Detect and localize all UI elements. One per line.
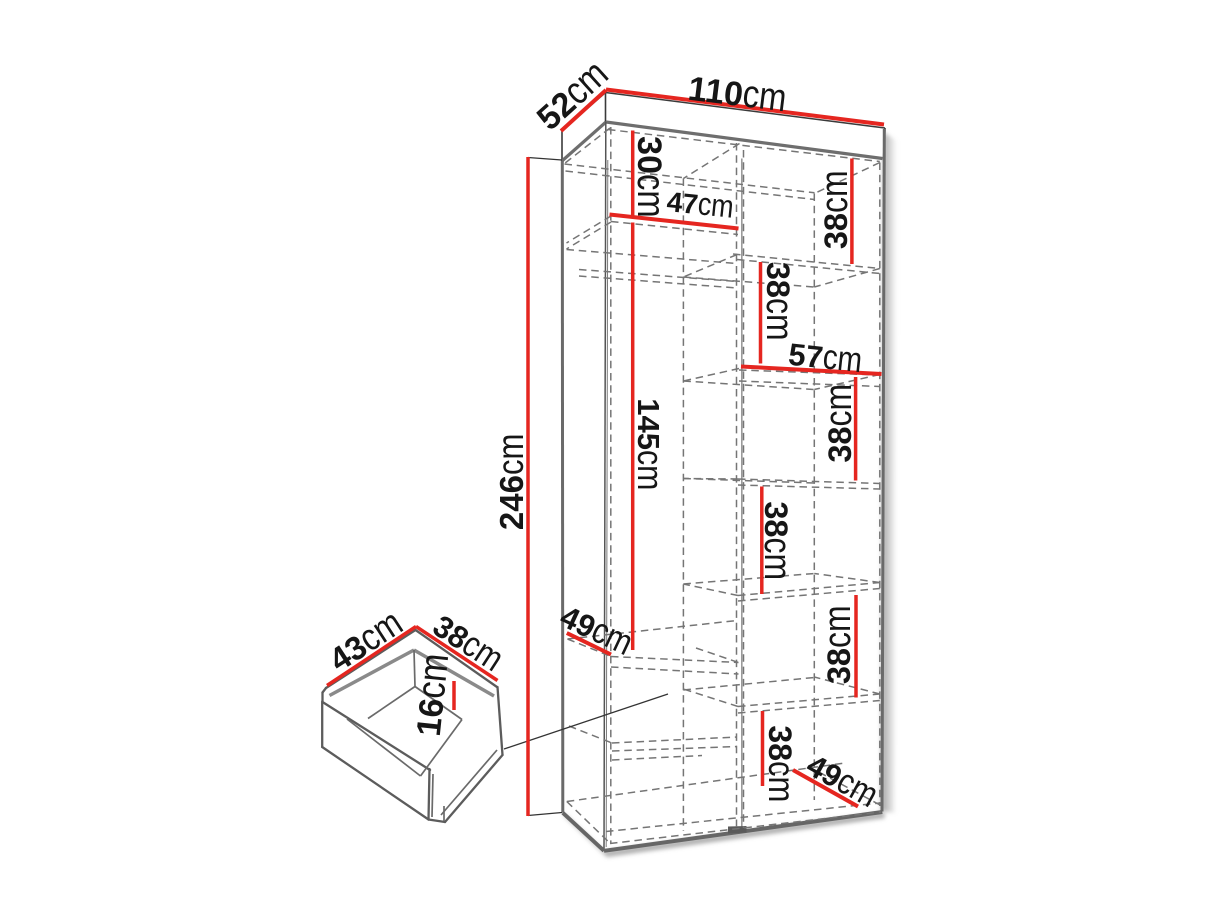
svg-text:110: 110 [686, 70, 745, 114]
svg-text:cm: cm [740, 71, 789, 120]
svg-text:38: 38 [760, 262, 796, 298]
svg-text:38: 38 [821, 648, 857, 684]
svg-text:cm: cm [629, 450, 669, 490]
svg-text:38: 38 [822, 427, 858, 463]
svg-text:38: 38 [758, 501, 794, 537]
svg-text:38: 38 [818, 213, 854, 249]
svg-text:16: 16 [410, 696, 452, 738]
svg-text:cm: cm [816, 605, 858, 648]
svg-text:246: 246 [493, 475, 530, 530]
svg-text:cm: cm [760, 761, 801, 802]
svg-text:cm: cm [491, 434, 532, 475]
svg-text:47: 47 [665, 186, 699, 220]
svg-text:38: 38 [762, 725, 798, 761]
svg-text:cm: cm [813, 170, 855, 213]
svg-text:cm: cm [408, 651, 457, 700]
svg-text:145: 145 [631, 398, 666, 450]
svg-text:30: 30 [630, 136, 668, 174]
svg-text:cm: cm [817, 384, 859, 427]
svg-text:cm: cm [696, 186, 735, 225]
svg-text:cm: cm [758, 298, 800, 341]
svg-text:cm: cm [821, 337, 864, 380]
svg-text:cm: cm [756, 538, 798, 581]
svg-text:57: 57 [787, 337, 825, 375]
